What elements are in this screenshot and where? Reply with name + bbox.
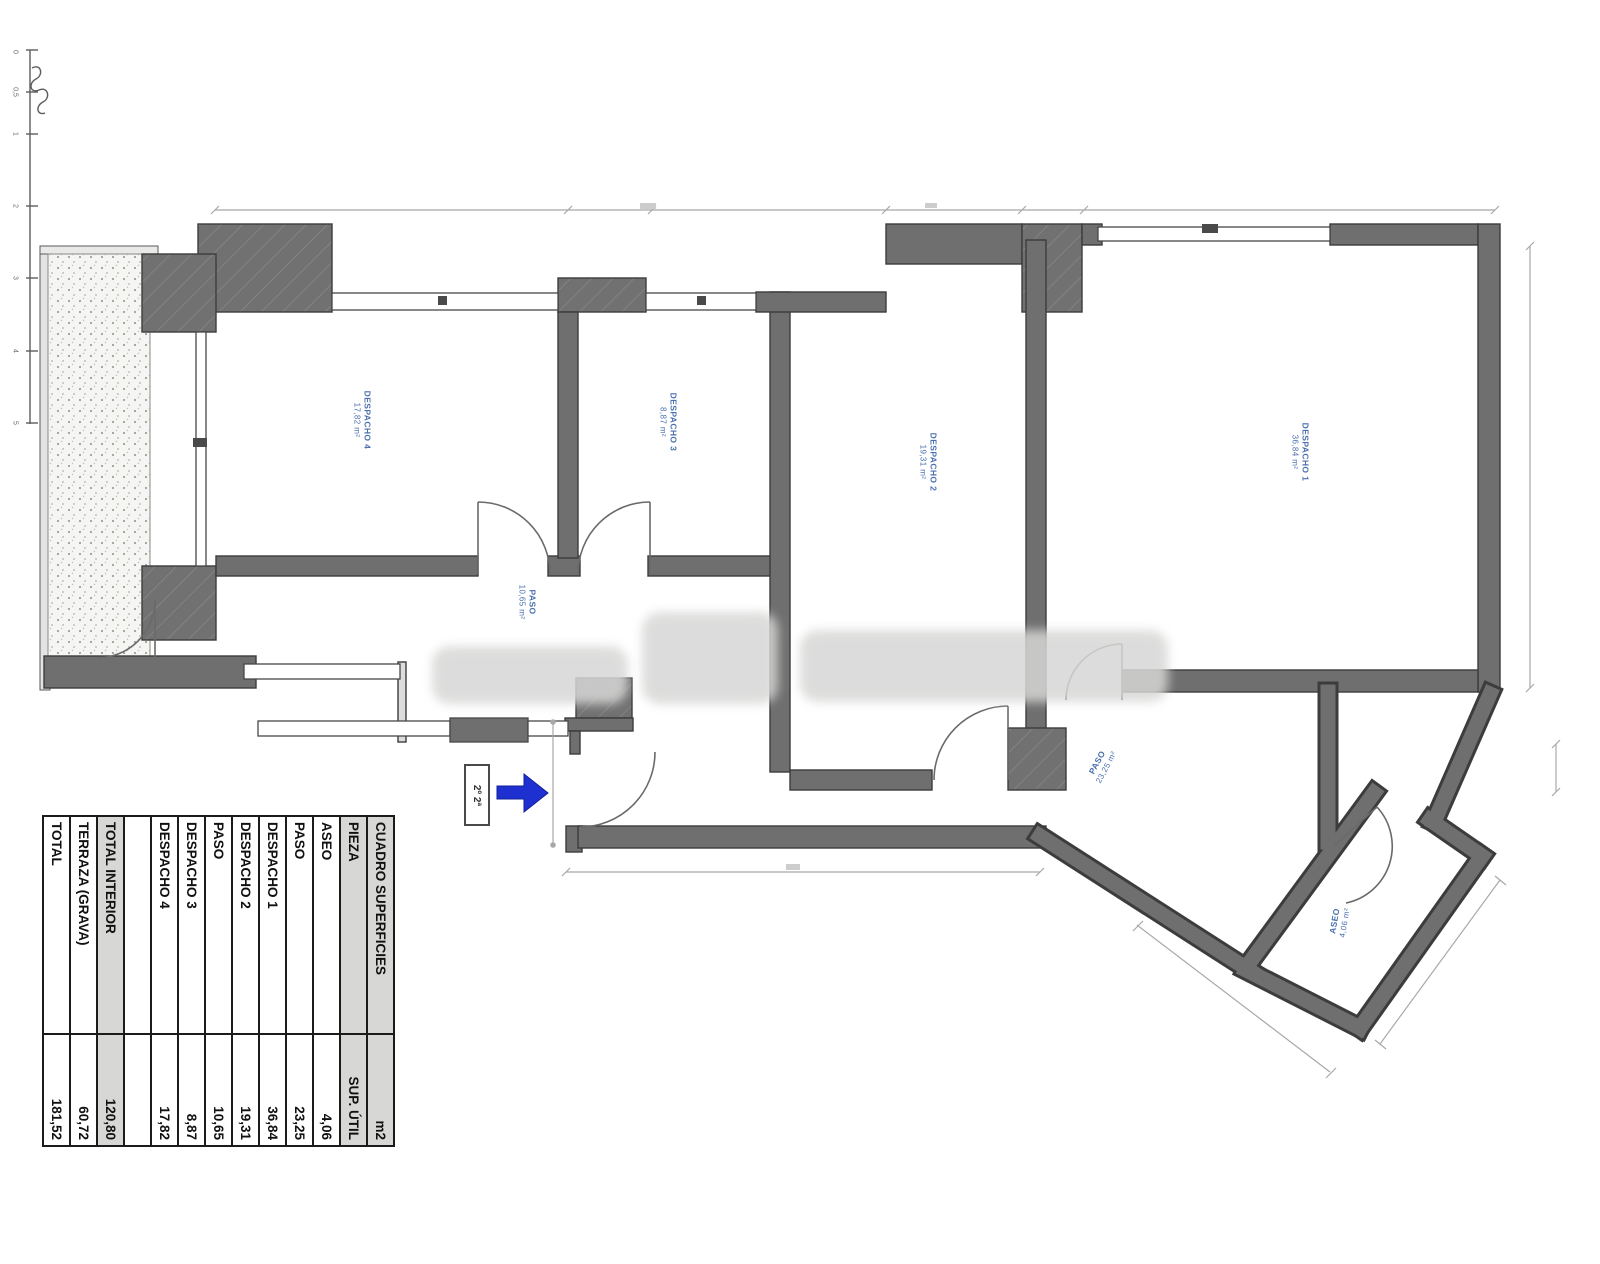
diagonal-walls <box>1040 692 1490 1028</box>
scale-tick-label: 3 <box>12 276 19 280</box>
scale-tick-label: 5 <box>12 421 19 425</box>
table-row: ASEO4,06 <box>313 816 340 1146</box>
unit-label-box: 2º 2ª <box>464 764 490 826</box>
floorplan-page: 2º 2ª DESPACHO 417,82 m²DESPACHO 38,87 m… <box>0 0 1600 1264</box>
surface-table-wrap: CUADRO SUPERFICIESm2PIEZASUP. ÚTILASEO4,… <box>17 815 395 1135</box>
despacho3-door-arc <box>578 502 650 574</box>
watermark-blur <box>800 630 1168 702</box>
surface-table: CUADRO SUPERFICIESm2PIEZASUP. ÚTILASEO4,… <box>42 815 395 1147</box>
table-total-row: TOTAL181,52 <box>43 816 70 1146</box>
table-row: PASO23,25 <box>286 816 313 1146</box>
room-label-despacho3: DESPACHO 38,87 m² <box>657 393 678 452</box>
walls <box>44 224 1500 852</box>
scale-tick-label: 2 <box>12 204 19 208</box>
room-label-despacho4: DESPACHO 417,82 m² <box>351 391 372 450</box>
table-row: DESPACHO 219,31 <box>232 816 259 1146</box>
table-title-row: CUADRO SUPERFICIESm2 <box>367 816 394 1146</box>
scale-squiggle <box>31 67 48 114</box>
unit-label: 2º 2ª <box>471 784 482 805</box>
table-spacer-row <box>124 816 151 1146</box>
despacho2-door-arc <box>934 706 1008 780</box>
entrance-door-arc <box>580 752 655 827</box>
table-row: DESPACHO 136,84 <box>259 816 286 1146</box>
table-row: PASO10,65 <box>205 816 232 1146</box>
scale-tick-label: 0,5 <box>12 87 19 97</box>
scale-tick-label: 4 <box>12 349 19 353</box>
table-row: DESPACHO 417,82 <box>151 816 178 1146</box>
watermark-blur <box>642 612 778 704</box>
scale-tick-label: 0 <box>12 50 19 54</box>
room-label-paso-hall: PASO10,65 m² <box>516 585 537 620</box>
table-row: DESPACHO 38,87 <box>178 816 205 1146</box>
table-total-row: TOTAL INTERIOR120,80 <box>97 816 124 1146</box>
room-label-despacho2: DESPACHO 219,31 m² <box>917 433 938 492</box>
table-header-row: PIEZASUP. ÚTIL <box>340 816 367 1146</box>
room-label-despacho1: DESPACHO 136,84 m² <box>1289 423 1310 482</box>
despacho4-door-arc <box>478 502 550 574</box>
scale-tick-label: 1 <box>12 132 19 136</box>
terrace <box>40 246 158 690</box>
entrance-arrow-icon <box>497 774 548 812</box>
watermark-blur <box>432 646 628 704</box>
table-total-row: TERRAZA (GRAVA)60,72 <box>70 816 97 1146</box>
